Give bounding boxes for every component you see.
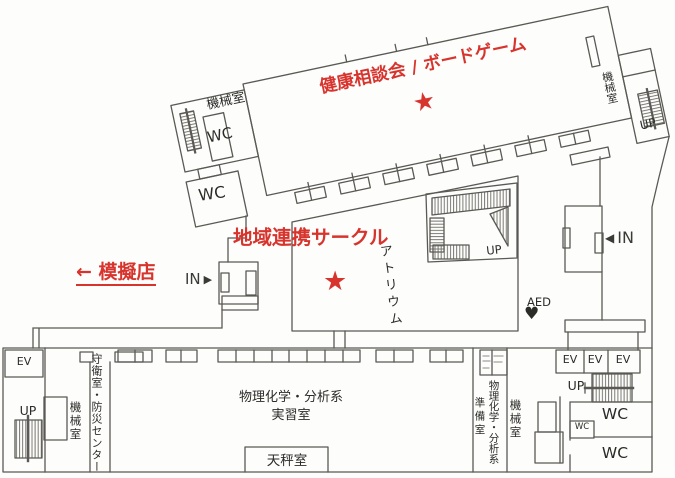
arrow-left-icon: ◀: [605, 232, 614, 245]
machine-room-bottom-left-label: 機械室: [69, 401, 81, 442]
upper-wing-walls: [167, 0, 669, 237]
ev-right-2-label: EV: [583, 354, 607, 366]
guard-disaster-center-label: 守衛室・防災センター: [91, 353, 102, 473]
floor-plan: 健康相談会 / ボードゲーム ★ 地域連携サークル ★ ← 模擬店 IN ▶ ◀…: [0, 0, 675, 478]
machine-room-bottom-right-label: 機械室: [509, 399, 521, 440]
up-bottom-right-label: UP: [561, 379, 591, 392]
up-bottom-left-label: UP: [14, 404, 42, 417]
lab-bench-row: [118, 350, 463, 362]
entrance-right-in: ◀ IN: [605, 230, 634, 247]
wc-bottom-small-label: WC: [570, 423, 594, 432]
prep-room-label-line2: 準備室: [474, 397, 485, 438]
ev-right-3-label: EV: [607, 354, 639, 366]
food-stalls-label: ← 模擬店: [76, 263, 156, 286]
entrance-right-in-text: IN: [617, 230, 634, 247]
ev-left-label: EV: [8, 356, 40, 368]
aed-heart-icon: ♥: [524, 306, 539, 324]
entrance-left-in: IN ▶: [185, 272, 212, 288]
balance-room-label: 天秤室: [247, 454, 327, 468]
prep-room-label-line1: 物理化学・分析系: [488, 380, 499, 464]
lab-room-label-line1: 物理化学・分析系: [211, 391, 371, 405]
event-circle-label: 地域連携サークル: [233, 228, 388, 248]
event-circle-star: ★: [323, 268, 347, 296]
up-atrium-label: UP: [481, 243, 506, 258]
wc-bottom-1-label: WC: [594, 406, 636, 422]
wc-bottom-2-label: WC: [594, 445, 636, 461]
lab-room-label-line2: 実習室: [211, 409, 371, 423]
ev-right-1-label: EV: [556, 354, 584, 366]
arrow-right-icon: ▶: [204, 274, 212, 286]
entrance-left-in-text: IN: [185, 272, 201, 288]
